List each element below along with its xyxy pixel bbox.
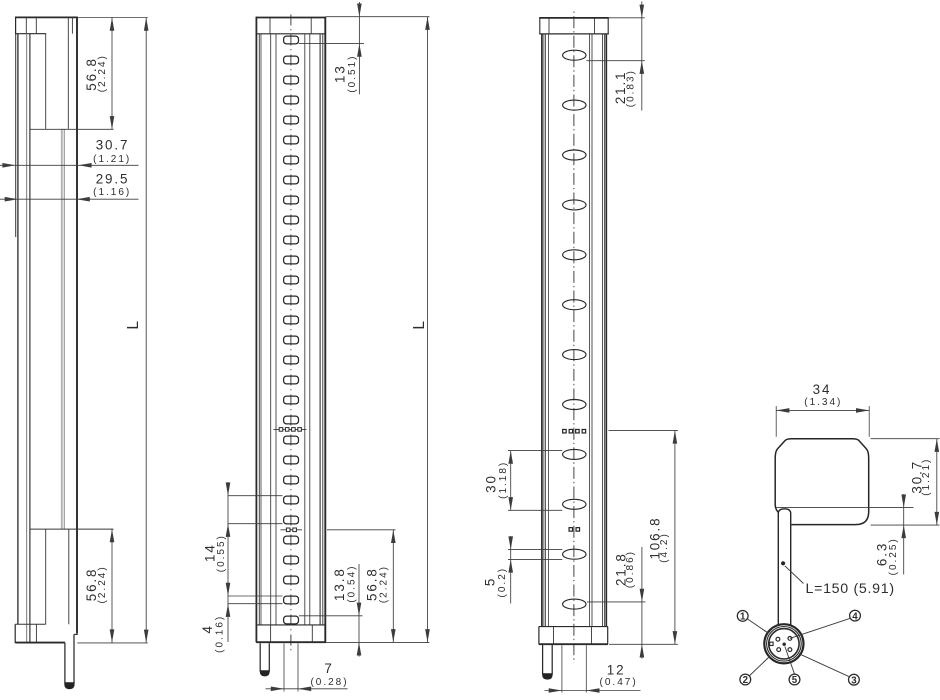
svg-text:(1.18): (1.18) <box>498 461 509 499</box>
svg-text:(4.2): (4.2) <box>659 532 670 563</box>
svg-text:(0.51): (0.51) <box>347 55 358 93</box>
svg-text:34: 34 <box>813 382 832 397</box>
svg-text:30: 30 <box>483 474 498 493</box>
svg-text:2: 2 <box>743 675 748 686</box>
svg-text:(0.55): (0.55) <box>216 534 227 572</box>
svg-text:(0.47): (0.47) <box>600 677 638 688</box>
svg-text:L: L <box>411 321 428 330</box>
svg-text:(2.24): (2.24) <box>379 565 390 603</box>
svg-text:13: 13 <box>332 64 347 83</box>
svg-text:4: 4 <box>852 611 858 622</box>
svg-text:1: 1 <box>740 612 746 623</box>
svg-text:(0.2): (0.2) <box>497 567 508 598</box>
svg-text:(1.21): (1.21) <box>93 154 131 165</box>
svg-text:56.8: 56.8 <box>364 567 379 601</box>
svg-text:(0.54): (0.54) <box>346 565 357 603</box>
svg-text:30.7: 30.7 <box>96 138 130 153</box>
svg-text:29.5: 29.5 <box>96 172 130 187</box>
svg-text:(0.16): (0.16) <box>214 615 225 653</box>
svg-text:(1.21): (1.21) <box>921 458 932 496</box>
svg-text:L=150 (5.91): L=150 (5.91) <box>806 581 895 597</box>
svg-text:7: 7 <box>324 661 333 676</box>
svg-text:L: L <box>125 321 142 330</box>
svg-text:3: 3 <box>851 675 857 686</box>
svg-text:4: 4 <box>200 624 215 633</box>
svg-text:(2.24): (2.24) <box>97 565 108 603</box>
svg-text:(2.24): (2.24) <box>97 54 108 92</box>
svg-text:(0.83): (0.83) <box>625 69 636 107</box>
svg-text:(1.34): (1.34) <box>804 397 842 408</box>
svg-text:5: 5 <box>792 675 798 686</box>
svg-text:5: 5 <box>483 577 498 586</box>
svg-text:(0.28): (0.28) <box>310 677 348 688</box>
svg-text:(1.16): (1.16) <box>93 187 131 198</box>
svg-text:(0.86): (0.86) <box>625 550 636 588</box>
svg-text:13.8: 13.8 <box>332 567 347 601</box>
svg-text:(0.25): (0.25) <box>888 537 899 575</box>
svg-text:12: 12 <box>607 662 626 677</box>
